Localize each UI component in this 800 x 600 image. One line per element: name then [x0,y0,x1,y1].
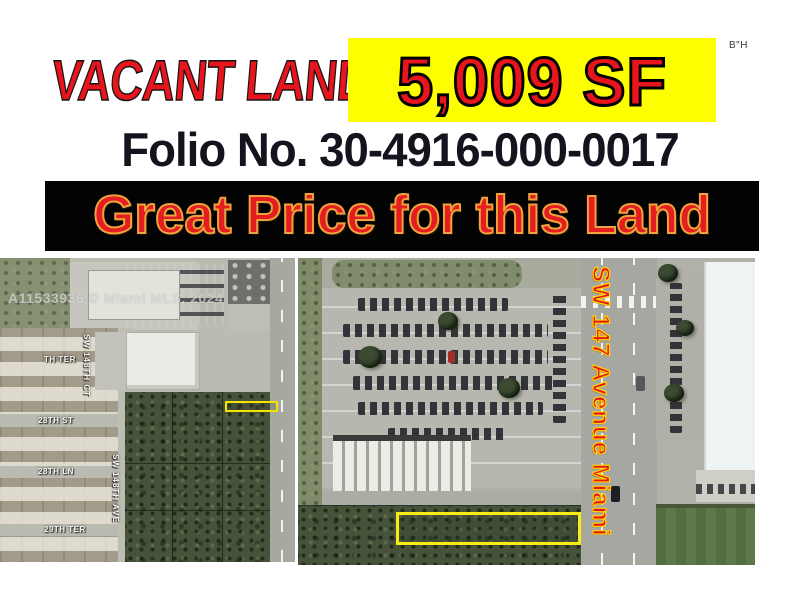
street-label: 29TH TER [44,525,86,534]
parking-cars-column [553,293,566,423]
parcel-line [125,463,272,464]
street-label: 28TH ST [38,416,74,425]
parking-cars-row [353,376,553,390]
parcel-line [172,392,173,562]
price-banner-text: Great Price for this Land [52,181,752,251]
canopy-building [333,435,471,491]
price-banner: Great Price for this Land [45,181,759,251]
red-car [448,351,455,363]
vacant-land-trees [125,392,272,562]
folio-number: Folio No. 30-4916-000-0017 [12,122,788,178]
white-warehouse-roof [704,262,755,470]
parking-cars-column [670,283,682,433]
lane-marking [281,258,283,562]
parking-cars-row [358,402,543,415]
small-building [696,470,755,502]
bh-mark: B"H [729,40,748,51]
real-estate-flyer: B"H VACANT LAND 5,009 SF Folio No. 30-49… [0,0,800,600]
street-label: TH TER [44,355,76,364]
mls-watermark: A11533936 © Miami MLS, 2024 [8,290,223,306]
green-field [656,504,755,565]
rear-driveway [322,491,582,505]
tree [438,312,458,330]
tree [498,378,520,398]
avenue-label: SW 147 Avenue Miami [586,266,614,560]
parcel-line [125,510,272,511]
street-label: SW 148TH AVE [111,454,120,550]
parcel-line [222,392,223,562]
size-label: 5,009 SF [357,38,707,126]
tree [664,384,684,402]
driveway [95,332,126,390]
dark-roof-building [228,260,272,304]
parcel-highlight-small [225,401,278,412]
street-label: 28TH LN [38,467,74,476]
parking-cars-row [358,298,508,311]
parcel-highlight-large [396,512,581,545]
aerial-photo-closeup: SW 147 Avenue Miami [298,258,755,565]
tree [658,264,678,282]
white-roof-building [126,332,200,390]
street-label: SW 148TH CT [82,334,91,406]
tree [676,320,694,336]
building-parking [228,304,272,330]
size-highlight-box: 5,009 SF [348,38,716,122]
trees-patch [332,260,522,288]
car-on-road [636,376,645,391]
vacant-land-title: VACANT LAND [49,48,372,114]
tree [358,346,382,368]
